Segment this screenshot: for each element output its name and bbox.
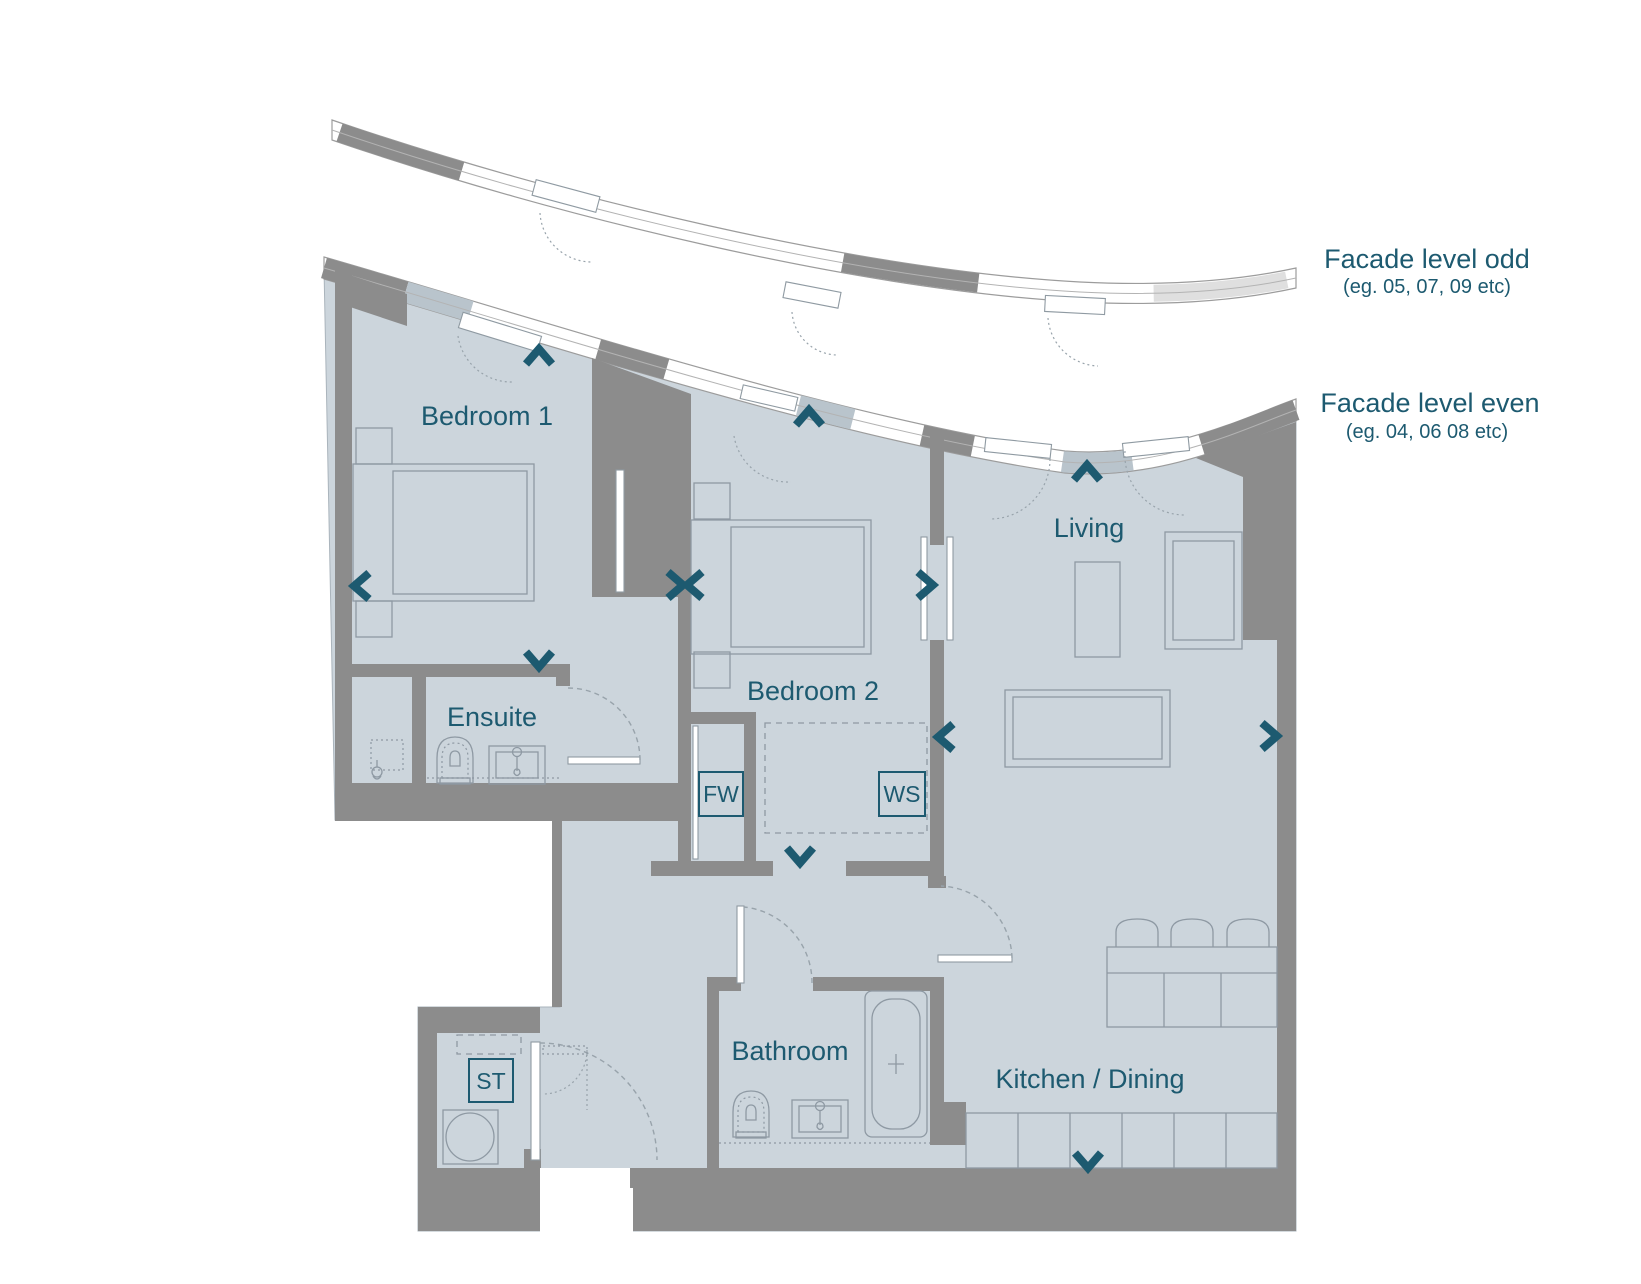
room-label-bedroom1: Bedroom 1	[421, 401, 553, 431]
bedroom2-left-wall	[678, 544, 691, 876]
door-swing	[792, 312, 837, 355]
room-label-bathroom: Bathroom	[731, 1036, 848, 1066]
tag-label-st: ST	[476, 1068, 505, 1094]
bedroom-divider-wall	[592, 358, 691, 597]
facade-wall-segments	[332, 130, 1296, 293]
right-exterior-wall	[1277, 640, 1296, 1231]
facade-door-panel	[1045, 295, 1106, 314]
entry-door-leaf	[531, 1042, 540, 1160]
tag-label-fw: FW	[703, 781, 739, 807]
room-label-ensuite: Ensuite	[447, 702, 537, 732]
notch-wall	[552, 820, 562, 1007]
living-wall-upper	[930, 436, 944, 545]
facade-panel-segments	[332, 130, 1296, 293]
door-swing	[1048, 318, 1098, 366]
living-wall-lower	[930, 640, 944, 876]
facade-annotations: Facade level odd (eg. 05, 07, 09 etc) Fa…	[1320, 244, 1539, 443]
bathroom-top-wall-east	[813, 977, 930, 991]
fw-door-panel	[693, 726, 698, 859]
pocket-door-panel	[616, 470, 624, 592]
storage-left-wall	[418, 1007, 437, 1168]
entry-threshold	[540, 1168, 633, 1232]
facade-band	[332, 120, 1296, 303]
ensuite-top-wall	[348, 664, 561, 677]
facade-odd-title: Facade level odd	[1324, 244, 1530, 274]
kitchen-wall-chunk	[930, 1102, 966, 1145]
ensuite-door-leaf	[568, 757, 640, 764]
kitchen-door-leaf	[938, 955, 1012, 962]
bathroom-left-wall	[707, 977, 719, 1168]
floorplan-page: Bedroom 1 Bedroom 2 Living Ensuite Bathr…	[0, 0, 1641, 1284]
bottom-wall-west	[418, 1168, 540, 1231]
facade-odd-subtitle: (eg. 05, 07, 09 etc)	[1343, 276, 1511, 298]
bathroom-door-leaf	[737, 906, 744, 983]
bathroom-top-wall-west	[707, 977, 741, 991]
corridor-wall-west	[651, 861, 773, 876]
ensuite-partition	[412, 677, 426, 783]
room-label-kitchen-dining: Kitchen / Dining	[995, 1064, 1184, 1094]
corridor-wall-east	[846, 861, 930, 876]
apartment-unit: Bedroom 1 Bedroom 2 Living Ensuite Bathr…	[324, 257, 1296, 1232]
floorplan-drawing: Bedroom 1 Bedroom 2 Living Ensuite Bathr…	[0, 0, 1641, 1284]
pocket-door-panel	[947, 537, 953, 640]
ensuite-bottom-wall	[335, 783, 683, 821]
door-jamb	[556, 664, 570, 686]
facade-even-title: Facade level even	[1320, 388, 1539, 418]
facade-even-subtitle: (eg. 04, 06 08 etc)	[1346, 421, 1508, 443]
fw-closet-right-wall	[744, 712, 756, 861]
room-label-living: Living	[1054, 513, 1125, 543]
facade-door-panel	[783, 282, 841, 308]
bathroom-kitchen-wall	[930, 977, 944, 1102]
room-label-bedroom2: Bedroom 2	[747, 676, 879, 706]
door-jamb	[630, 1168, 644, 1188]
door-swing	[540, 213, 591, 262]
left-exterior-wall	[335, 270, 352, 820]
bottom-wall-east	[633, 1168, 1296, 1231]
tag-label-ws: WS	[883, 781, 920, 807]
